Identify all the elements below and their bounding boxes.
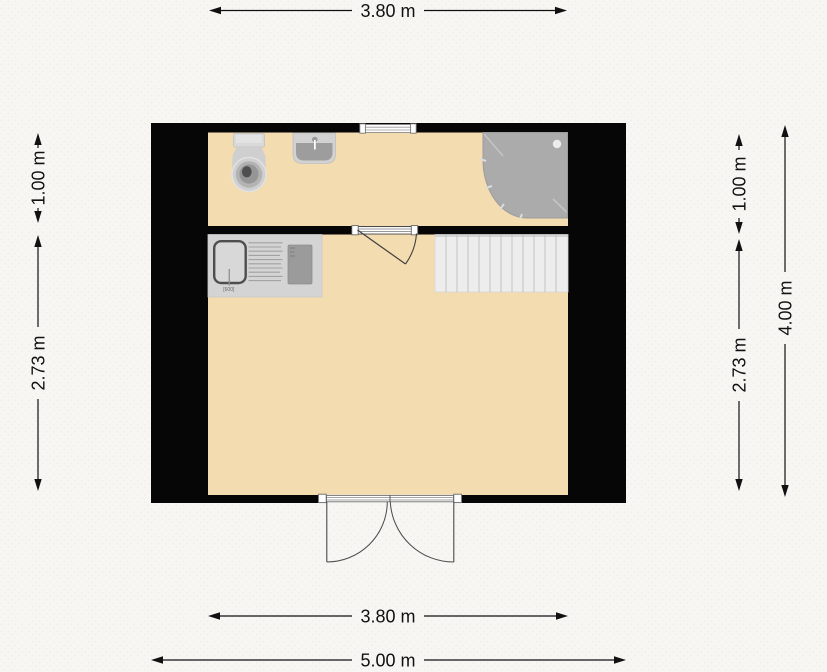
svg-text:1.00 m: 1.00 m xyxy=(730,156,750,211)
svg-text:[600]: [600] xyxy=(223,287,235,293)
svg-text:3.80 m: 3.80 m xyxy=(360,1,415,21)
svg-text:2.73 m: 2.73 m xyxy=(29,335,49,390)
svg-text:4.00 m: 4.00 m xyxy=(776,280,796,335)
svg-text:5.00 m: 5.00 m xyxy=(360,651,415,671)
svg-text:1.00 m: 1.00 m xyxy=(29,150,49,205)
svg-text:3.80 m: 3.80 m xyxy=(360,607,415,627)
svg-text:2.73 m: 2.73 m xyxy=(730,337,750,392)
